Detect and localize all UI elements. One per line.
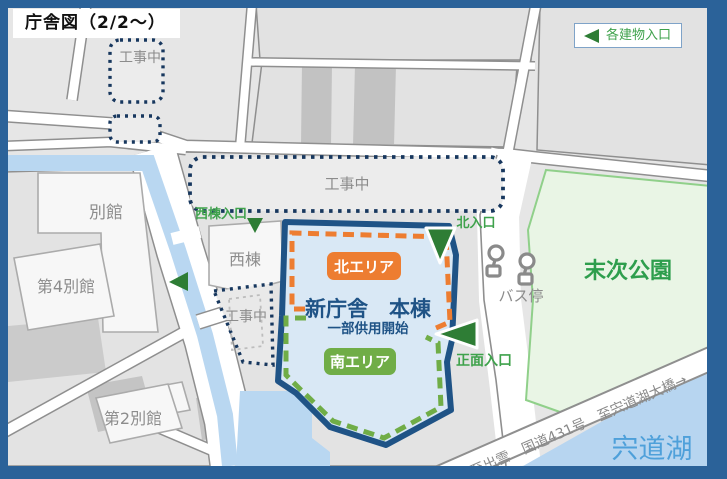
main-building-name: 新庁舎 本棟 bbox=[305, 297, 432, 321]
main-building-status: 一部供用開始 bbox=[328, 320, 409, 337]
government-office-map: 北エリア 南エリア 工事中 工事中 工事中 別館 第4別館 第2別館 西棟 新庁… bbox=[0, 0, 727, 479]
legend-label: 各建物入口 bbox=[606, 28, 671, 43]
west-entrance-label: 西棟入口 bbox=[195, 206, 247, 222]
entrance-arrow-icon bbox=[584, 29, 599, 43]
construction-label-1: 工事中 bbox=[119, 50, 161, 66]
construction-label-long: 工事中 bbox=[324, 175, 369, 193]
bridge bbox=[172, 232, 200, 239]
frame-left bbox=[0, 0, 8, 479]
construction-box-2 bbox=[110, 116, 160, 142]
park-label: 末次公園 bbox=[584, 258, 672, 284]
north-entrance-label: 北入口 bbox=[456, 216, 495, 231]
bus-stop-label: バス停 bbox=[498, 287, 543, 305]
annex2-label: 第2別館 bbox=[104, 409, 162, 428]
construction-label-3: 工事中 bbox=[225, 309, 267, 325]
frame-top bbox=[0, 0, 727, 8]
north-area-label: 北エリア bbox=[334, 258, 394, 276]
annex4-label: 第4別館 bbox=[37, 277, 95, 296]
legend: 各建物入口 bbox=[574, 23, 682, 48]
map-title: 庁舎図（2/2～） bbox=[13, 9, 180, 38]
lake-label: 宍道湖 bbox=[612, 434, 693, 465]
south-area-label: 南エリア bbox=[330, 353, 390, 371]
building-block bbox=[8, 318, 106, 382]
parcel-top bbox=[256, 4, 534, 60]
front-entrance-label: 正面入口 bbox=[456, 353, 512, 369]
building-block bbox=[301, 63, 332, 146]
map-canvas: 北エリア 南エリア 工事中 工事中 工事中 別館 第4別館 第2別館 西棟 新庁… bbox=[0, 0, 727, 479]
annex-label: 別館 bbox=[89, 203, 123, 223]
building-block bbox=[353, 64, 396, 146]
west-wing-label: 西棟 bbox=[229, 250, 261, 269]
frame-right bbox=[707, 0, 727, 479]
frame-bottom bbox=[0, 466, 727, 479]
